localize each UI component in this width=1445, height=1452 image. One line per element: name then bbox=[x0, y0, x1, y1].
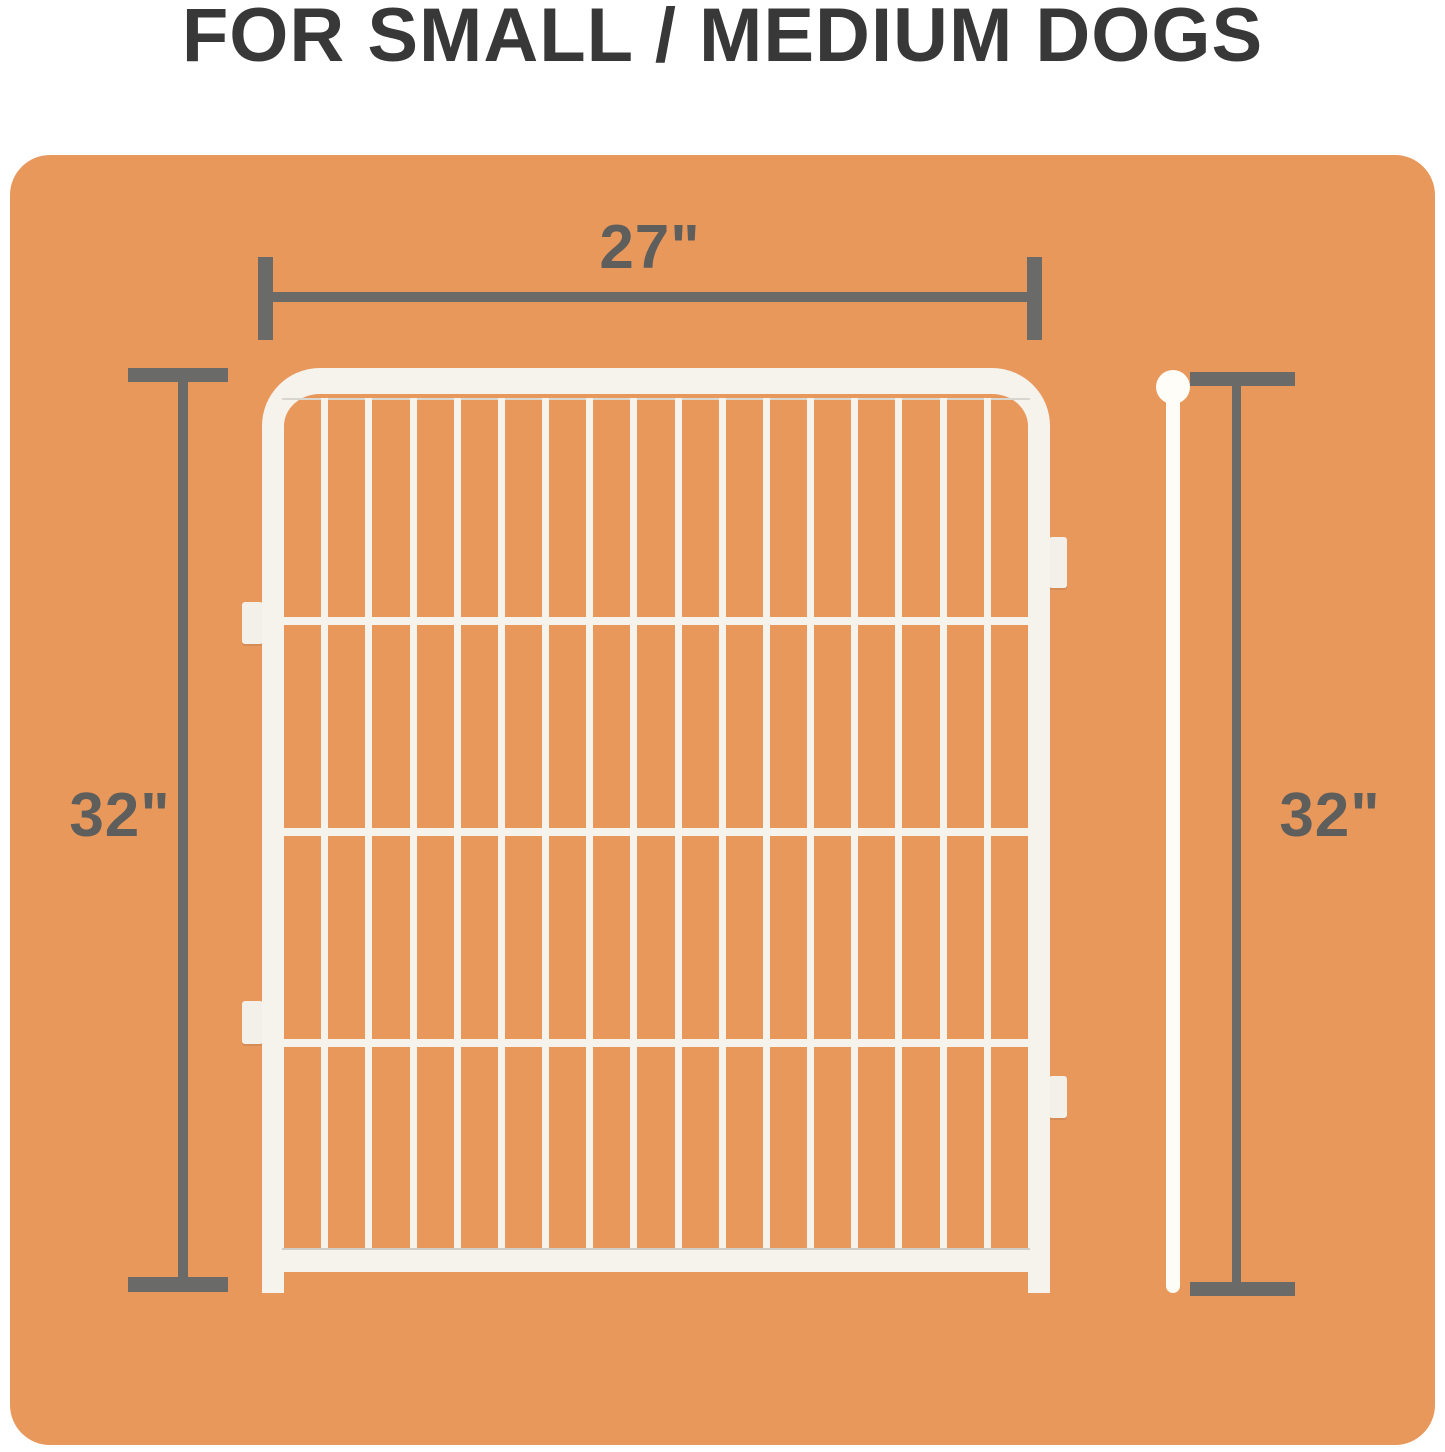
panel-vertical-wire bbox=[895, 398, 902, 1249]
panel-vertical-wire bbox=[763, 398, 770, 1249]
panel-vertical-wire bbox=[719, 398, 726, 1249]
panel-vertical-wire bbox=[365, 398, 372, 1249]
height-dimension-endcap-bottom-left bbox=[128, 1277, 228, 1292]
height-dimension-line-left bbox=[178, 375, 188, 1285]
height-dimension-endcap-bottom-right bbox=[1190, 1282, 1295, 1296]
panel-horizontal-wire bbox=[284, 828, 1028, 836]
panel-vertical-wire bbox=[807, 398, 814, 1249]
height-dimension-label-left: 32" bbox=[55, 783, 185, 849]
height-dimension-endcap-top-right bbox=[1190, 372, 1295, 386]
panel-vertical-wires bbox=[284, 398, 1028, 1249]
panel-connector-tab-right-upper bbox=[1049, 537, 1067, 588]
height-dimension-line-right bbox=[1232, 384, 1241, 1284]
panel-vertical-wire bbox=[542, 398, 549, 1249]
panel-bottom-rail bbox=[282, 1248, 1030, 1272]
panel-connector-tab-left-lower bbox=[242, 1001, 263, 1044]
panel-vertical-wire bbox=[984, 398, 991, 1249]
panel-horizontal-wire bbox=[284, 1039, 1028, 1047]
panel-vertical-wire bbox=[630, 398, 637, 1249]
product-dimension-image: FOR SMALL / MEDIUM DOGS 27" 32" 32" bbox=[0, 0, 1445, 1452]
width-dimension-endcap-left bbox=[258, 257, 273, 340]
panel-vertical-wire bbox=[498, 398, 505, 1249]
panel-connector-tab-right-lower bbox=[1049, 1076, 1067, 1118]
panel-horizontal-wire bbox=[284, 617, 1028, 625]
pen-panel bbox=[262, 368, 1050, 1293]
measuring-rod-ball bbox=[1156, 370, 1190, 404]
measuring-rod bbox=[1166, 396, 1180, 1293]
page-title: FOR SMALL / MEDIUM DOGS bbox=[0, 0, 1445, 76]
height-dimension-label-right: 32" bbox=[1265, 783, 1395, 849]
panel-vertical-wire bbox=[940, 398, 947, 1249]
panel-connector-tab-left-upper bbox=[242, 602, 263, 644]
width-dimension-label: 27" bbox=[258, 215, 1042, 281]
panel-vertical-wire bbox=[851, 398, 858, 1249]
panel-vertical-wire bbox=[586, 398, 593, 1249]
panel-vertical-wire bbox=[675, 398, 682, 1249]
width-dimension-endcap-right bbox=[1027, 257, 1042, 340]
height-dimension-endcap-top-left bbox=[128, 368, 228, 382]
width-dimension-line bbox=[258, 292, 1042, 302]
panel-vertical-wire bbox=[410, 398, 417, 1249]
panel-vertical-wire bbox=[454, 398, 461, 1249]
panel-vertical-wire bbox=[321, 398, 328, 1249]
